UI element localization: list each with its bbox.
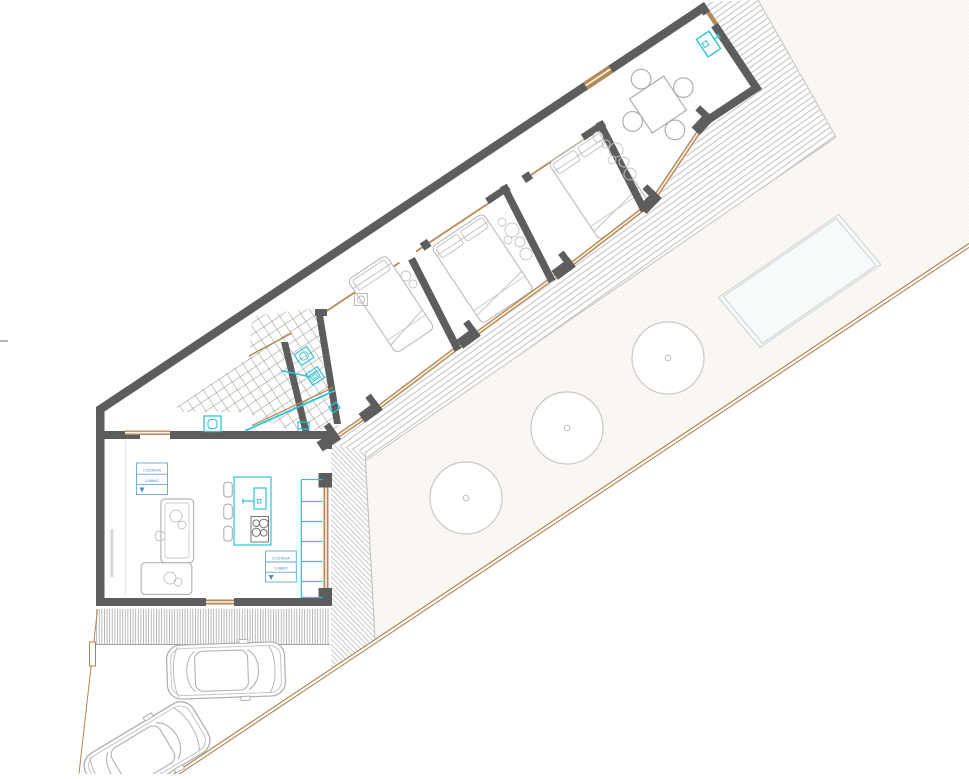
svg-text:COZINHA: COZINHA bbox=[143, 468, 161, 473]
svg-text:9.88M2: 9.88M2 bbox=[274, 566, 288, 571]
svg-text:8.88M2: 8.88M2 bbox=[145, 478, 159, 483]
svg-text:COZINHA: COZINHA bbox=[272, 556, 290, 561]
